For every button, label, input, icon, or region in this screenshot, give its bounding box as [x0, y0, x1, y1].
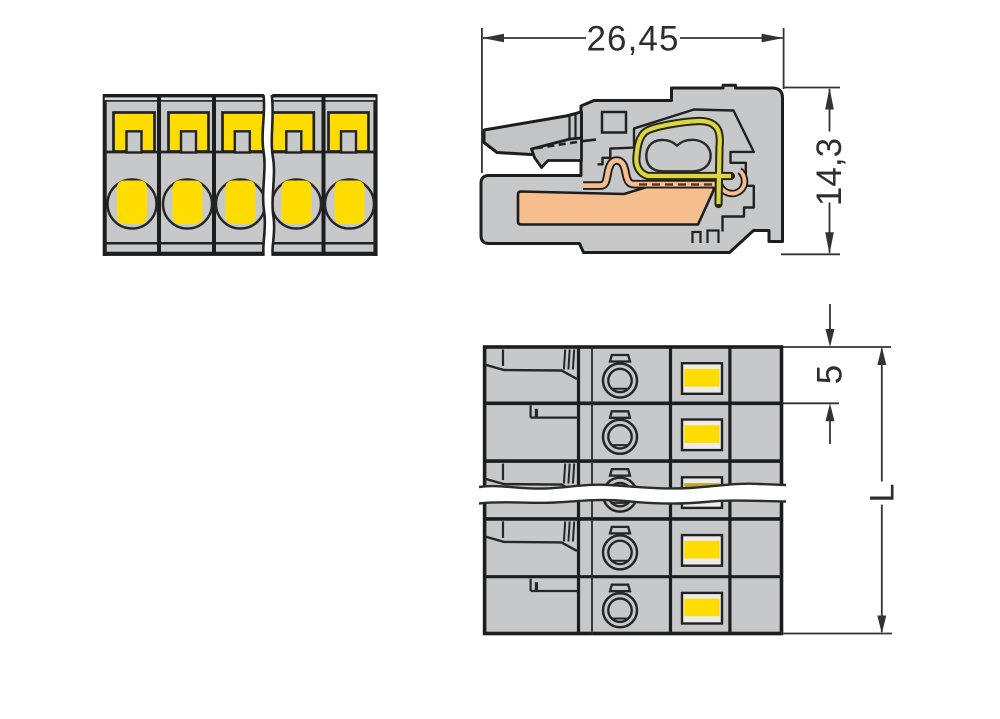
svg-text:5: 5 — [811, 365, 850, 384]
svg-text:L: L — [864, 484, 902, 503]
svg-text:26,45: 26,45 — [586, 20, 679, 59]
svg-text:14,3: 14,3 — [810, 138, 849, 206]
